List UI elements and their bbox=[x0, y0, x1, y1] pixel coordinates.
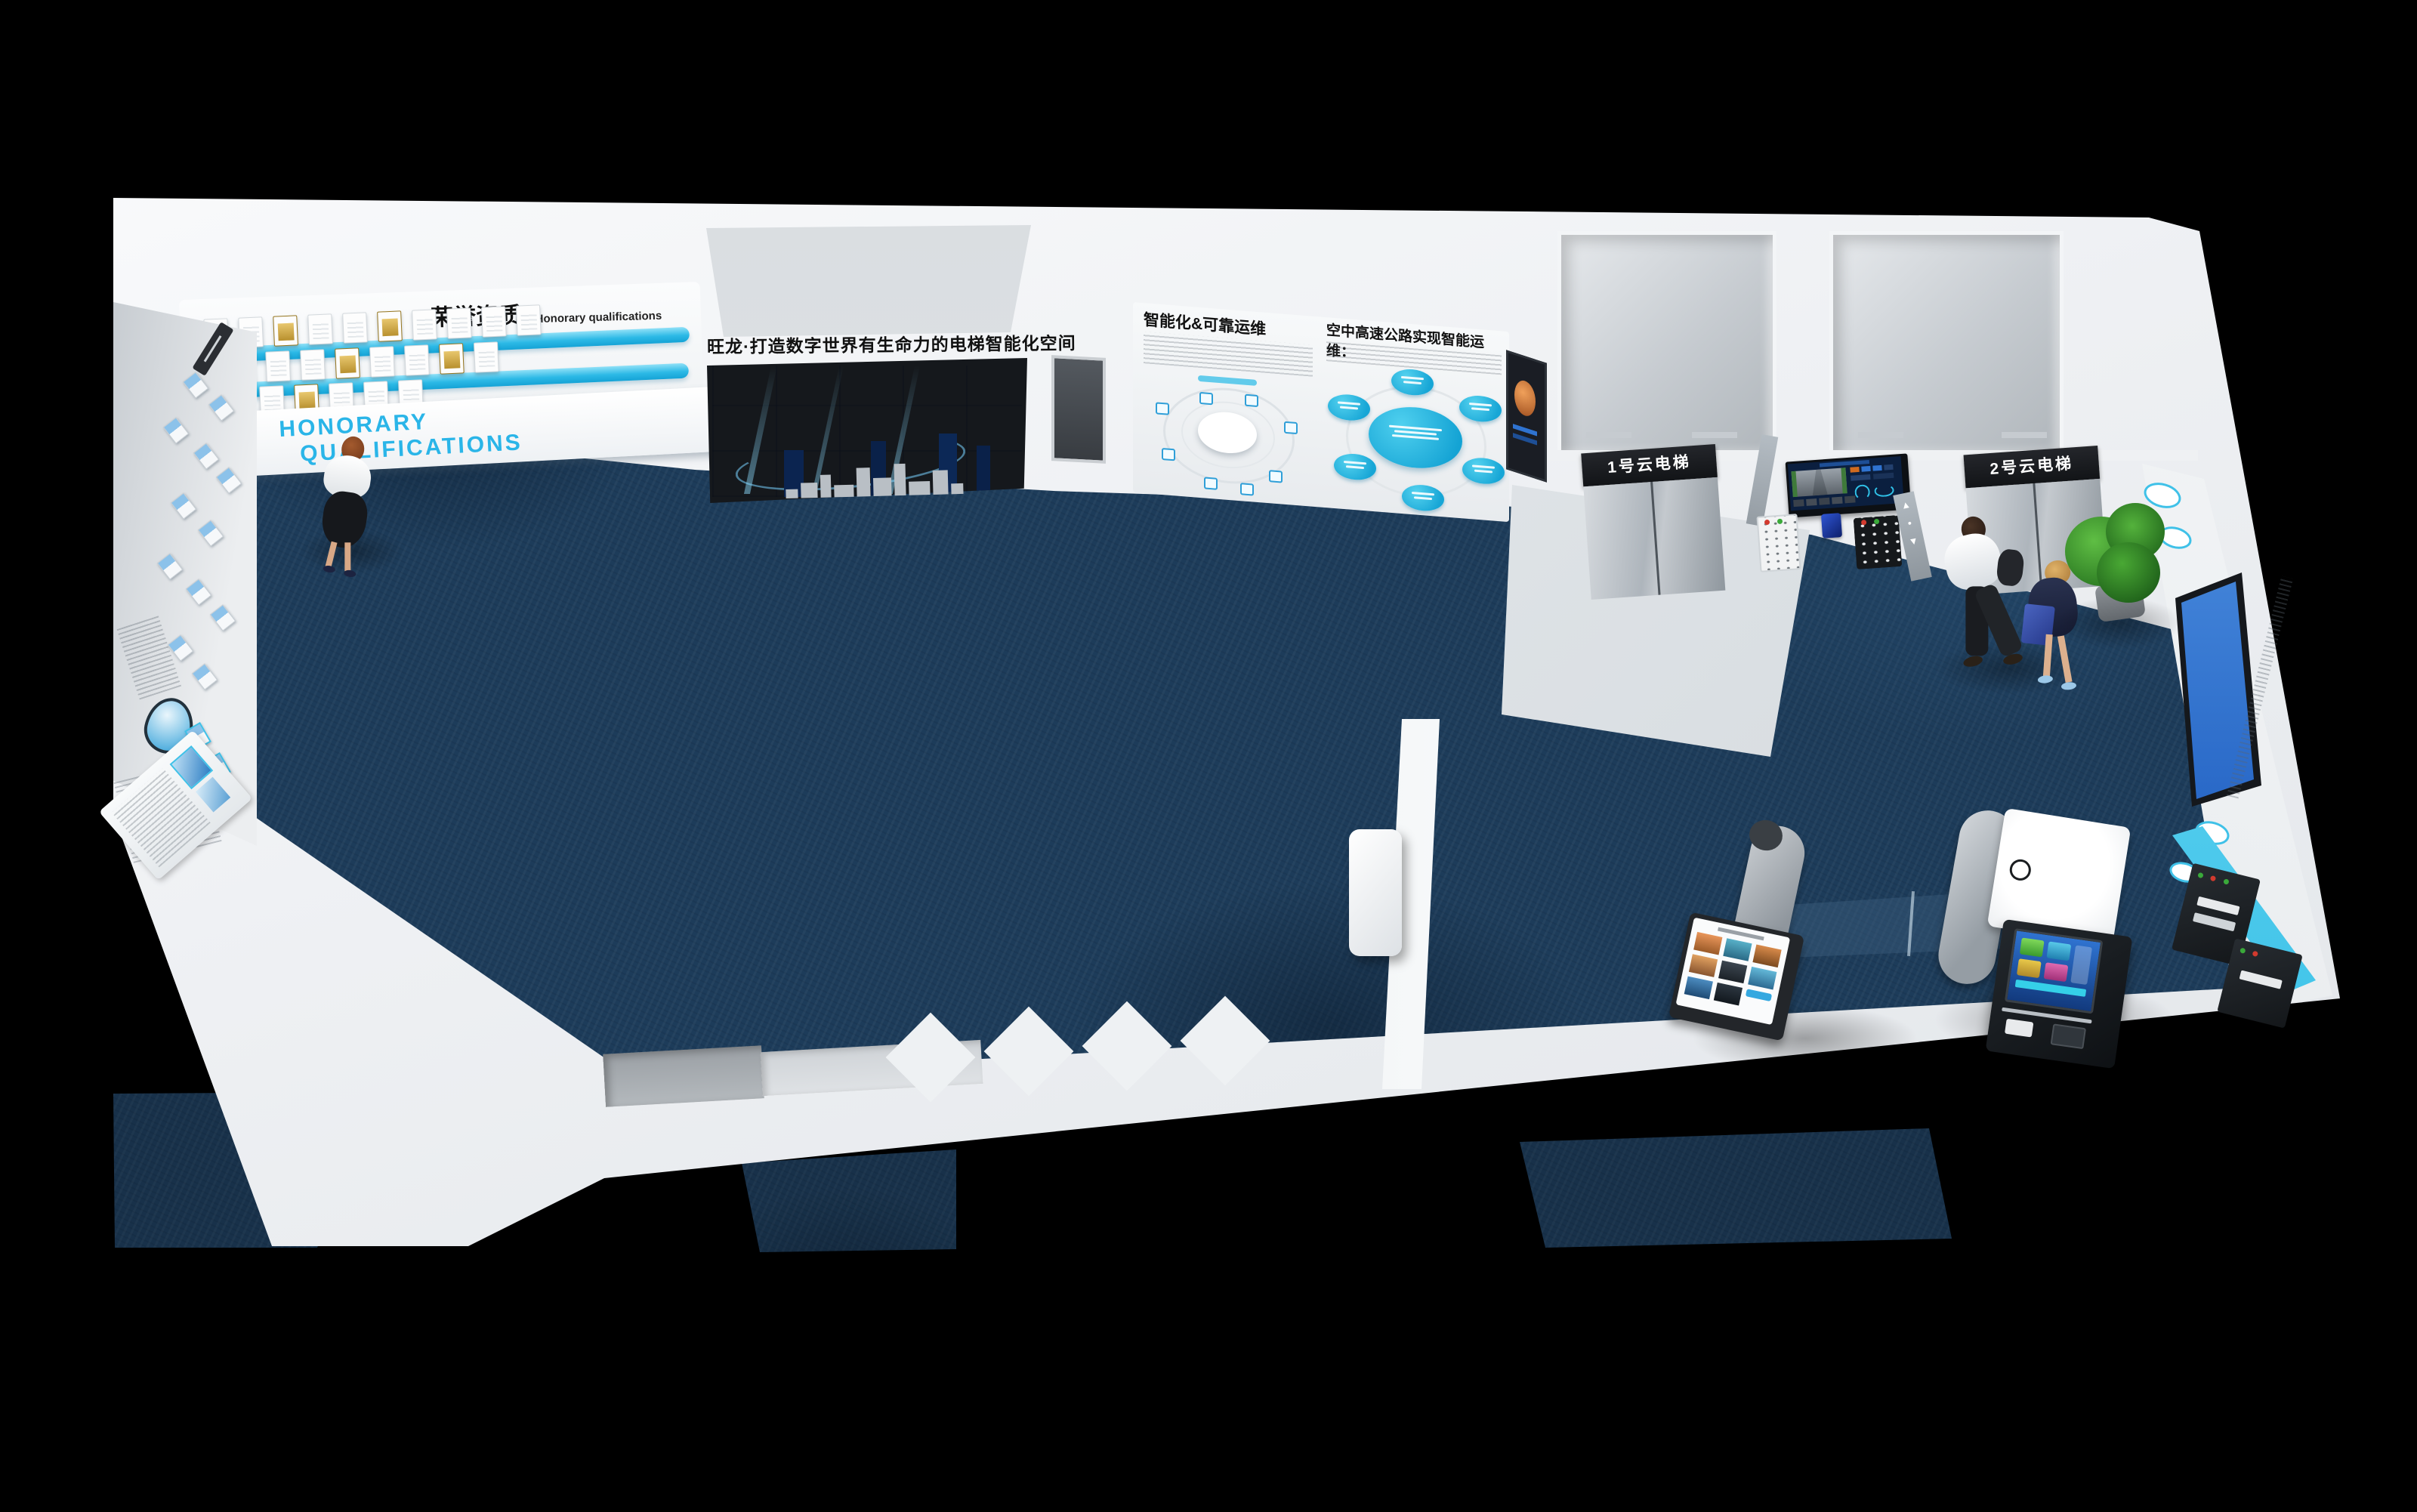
ops-node-icon bbox=[1240, 483, 1254, 495]
card-tray bbox=[2005, 1019, 2033, 1038]
light-blue-heel bbox=[2061, 681, 2077, 690]
elevator-call-panel-white bbox=[1756, 514, 1801, 572]
ops-node-icon bbox=[1284, 421, 1298, 434]
potted-plant bbox=[2057, 501, 2178, 637]
ops-node-icon bbox=[1245, 394, 1258, 407]
black-skirt bbox=[319, 489, 370, 551]
certificate-card bbox=[404, 344, 430, 375]
ops-node-icon bbox=[1199, 392, 1213, 405]
red-indicator-led bbox=[1861, 520, 1866, 525]
green-indicator-led bbox=[2197, 872, 2203, 878]
dashboard-thumb bbox=[1806, 498, 1817, 506]
ops-ring-diagram bbox=[1156, 372, 1299, 496]
honorary-title-en: Honorary qualifications bbox=[535, 310, 662, 326]
corner-display-screen bbox=[1506, 350, 1547, 483]
dashboard-thumb bbox=[1819, 498, 1830, 505]
keypad bbox=[2051, 1023, 2086, 1049]
photo-thumbnail bbox=[1684, 977, 1713, 1000]
photo-thumbnail bbox=[1723, 938, 1752, 961]
certificate-plaque-gold bbox=[273, 315, 298, 346]
elevator-shaft-1 bbox=[1557, 231, 1776, 458]
app-tile bbox=[2017, 958, 2042, 978]
elevator-1-sign-text: 1号云电梯 bbox=[1607, 453, 1692, 477]
leg bbox=[344, 542, 350, 571]
photo-thumbnail bbox=[1748, 967, 1776, 990]
up-arrow-icon: ▲ bbox=[1894, 497, 1918, 512]
dashboard-tile bbox=[1873, 473, 1894, 480]
leg bbox=[326, 542, 338, 568]
wall-phone-panel bbox=[1821, 513, 1842, 538]
video-wall: 旺龙·打造数字世界有生命力的电梯智能化空间 bbox=[702, 331, 1042, 527]
app-tile bbox=[2044, 962, 2069, 982]
ledge-slot bbox=[1586, 432, 1631, 438]
elevator-shaft-2 bbox=[1829, 231, 2064, 458]
ops-node-icon bbox=[1156, 402, 1169, 415]
certificate-plaque-gold bbox=[439, 343, 465, 374]
dashboard-gauge bbox=[1854, 484, 1870, 500]
red-indicator-led bbox=[1764, 520, 1770, 525]
photo-thumbnail bbox=[1693, 932, 1722, 955]
shoe bbox=[1962, 654, 1983, 668]
red-indicator-led bbox=[2252, 951, 2258, 957]
door-opening bbox=[1051, 355, 1106, 464]
dashboard-tile bbox=[1884, 464, 1893, 471]
dashboard-thumb bbox=[1832, 497, 1843, 505]
app-tile bbox=[2020, 937, 2045, 957]
storage-niche-dark bbox=[603, 1045, 764, 1107]
photo-thumbnail bbox=[1689, 954, 1718, 977]
banner-slogan: 旺龙·打造数字世界有生命力的电梯智能化空间 bbox=[707, 329, 1039, 359]
dashboard-gauge bbox=[1874, 484, 1894, 498]
dashboard-road-camera bbox=[1792, 467, 1847, 497]
photo-thumbnail bbox=[1752, 945, 1781, 968]
green-indicator-led bbox=[2223, 878, 2229, 884]
certificate-card bbox=[516, 304, 542, 335]
app-tile bbox=[2046, 941, 2071, 961]
certificate-plaque-gold bbox=[377, 310, 403, 341]
certificate-card bbox=[474, 341, 499, 372]
elevator-1: 1号云电梯 bbox=[1581, 444, 1726, 604]
green-indicator-led bbox=[1874, 519, 1879, 524]
certificate-card bbox=[369, 346, 395, 377]
certificate-plaque-gold bbox=[335, 347, 360, 378]
dashboard-thumb bbox=[1844, 495, 1856, 503]
dashboard-tile bbox=[1861, 466, 1870, 472]
dashboard-tile bbox=[1851, 474, 1870, 481]
city-skyline-silhouette bbox=[785, 459, 1020, 498]
ops-node-icon bbox=[1269, 470, 1283, 483]
exhibition-hall-render: 荣誉资质 Honorary qualifications bbox=[0, 0, 2417, 1512]
certificate-card bbox=[342, 312, 368, 343]
red-indicator-led bbox=[2210, 875, 2216, 881]
elevator-2-sign-text: 2号云电梯 bbox=[1989, 455, 2074, 478]
hall-dashboard-screen bbox=[1786, 453, 1912, 517]
kiosk-camera-icon bbox=[2008, 858, 2033, 882]
certificate-card bbox=[481, 306, 507, 337]
dashboard-thumb bbox=[1793, 499, 1804, 507]
green-indicator-led bbox=[1777, 519, 1783, 524]
ledge-slot bbox=[1858, 432, 1903, 438]
smart-ops-block: 智能化&可靠运维 bbox=[1144, 307, 1316, 502]
dashboard-tile bbox=[1872, 465, 1881, 471]
photo-thumbnail bbox=[1714, 983, 1743, 1006]
infographic-wall: 智能化&可靠运维 空中高速公路实现智能运维： bbox=[1133, 302, 1509, 522]
certificate-card bbox=[412, 309, 437, 340]
kiosk-machine bbox=[1986, 919, 2133, 1069]
ops-node-icon bbox=[1162, 448, 1175, 461]
white-shirt bbox=[1939, 528, 2006, 594]
app-sidebar bbox=[2070, 945, 2092, 985]
bench bbox=[1349, 829, 1402, 956]
elevator-1-doors bbox=[1583, 477, 1725, 600]
foliage bbox=[2097, 542, 2160, 603]
dashboard-tile bbox=[1850, 467, 1859, 473]
screen-button bbox=[1746, 989, 1772, 1001]
bubble-satellite bbox=[1328, 393, 1370, 421]
kiosk-screen bbox=[2005, 928, 2103, 1014]
cloud-bubble-diagram bbox=[1329, 367, 1502, 515]
certificate-card bbox=[300, 349, 326, 380]
ops-node-icon bbox=[1204, 477, 1218, 489]
aerial-highway-block: 空中高速公路实现智能运维： bbox=[1326, 319, 1506, 519]
light-blue-heel bbox=[2037, 675, 2053, 684]
elevator-call-panel-black bbox=[1854, 515, 1903, 569]
certificate-card bbox=[265, 350, 291, 381]
certificate-card bbox=[307, 313, 333, 344]
certificate-card bbox=[446, 307, 472, 338]
ledge-slot bbox=[1692, 432, 1737, 438]
ledge-slot bbox=[2002, 432, 2047, 438]
green-indicator-led bbox=[2240, 947, 2246, 953]
photo-thumbnail bbox=[1718, 961, 1747, 984]
